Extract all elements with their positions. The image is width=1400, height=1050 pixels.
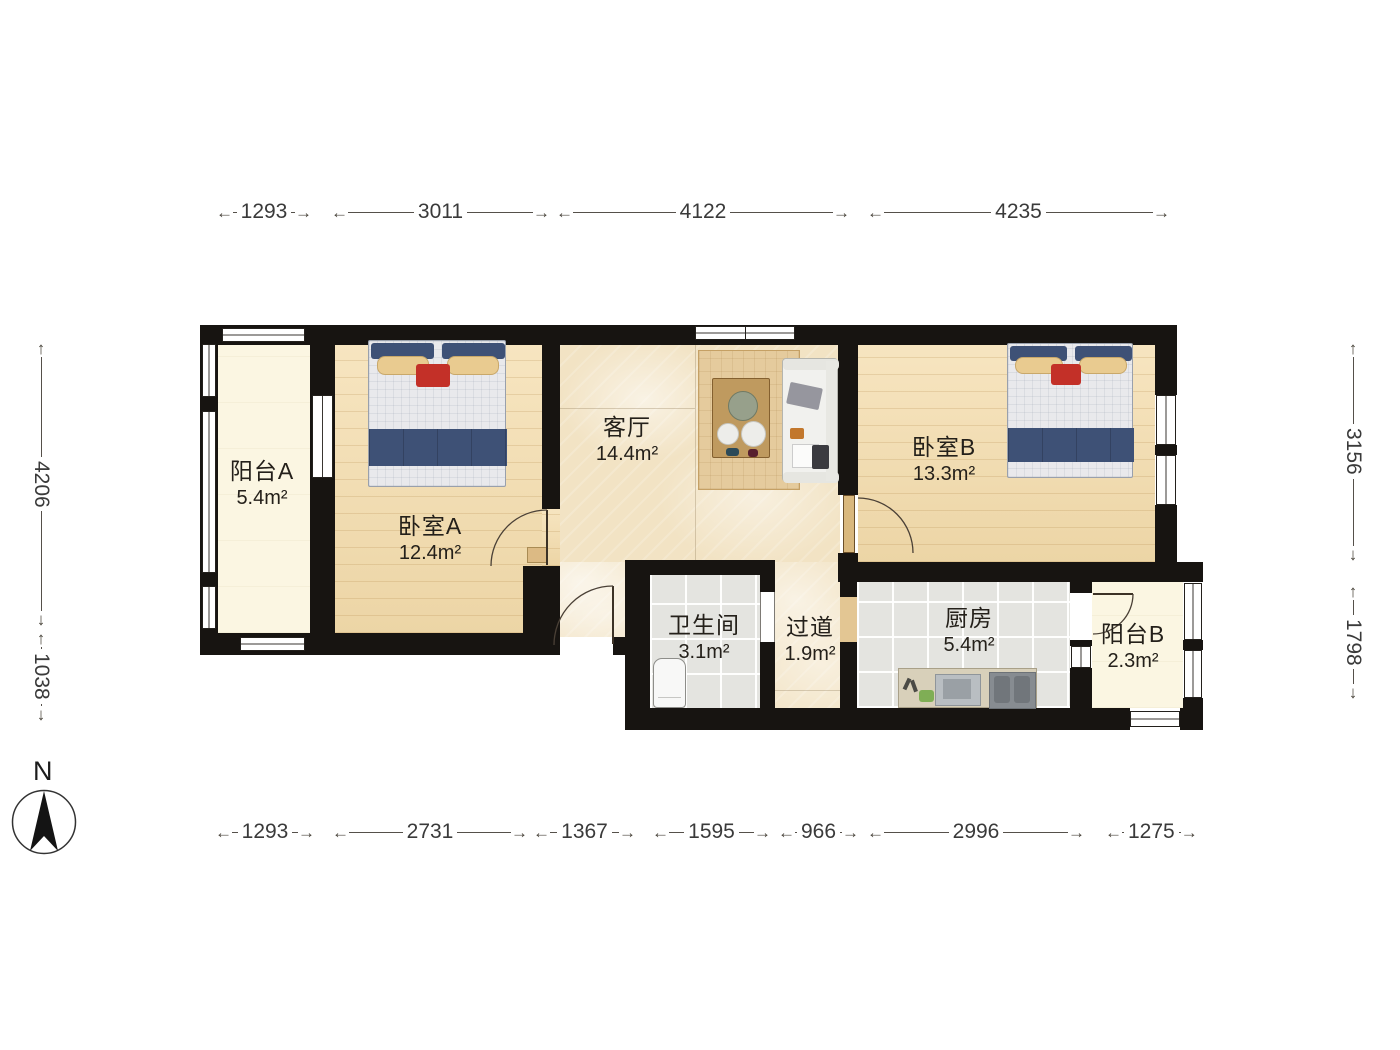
wall-segment [523, 637, 557, 655]
dim-line [573, 212, 676, 213]
wall-segment [625, 560, 775, 575]
arrow-right-icon: → [298, 824, 315, 841]
wall-segment [200, 325, 1177, 345]
window-icon [1156, 455, 1176, 505]
dimension-bottom-2: ← 1367 → [533, 819, 636, 845]
dimension-left-0: ↑ 4206 ↓ [28, 340, 54, 628]
dimension-right-0: ↑ 3156 ↓ [1340, 340, 1366, 563]
dimension-right-1: ↑ 1798 ↓ [1340, 583, 1366, 701]
sofa-pillow [786, 382, 823, 410]
wall-segment [1155, 325, 1177, 395]
room-label-balcony-a: 阳台A 5.4m² [192, 458, 332, 510]
bed-blanket [369, 429, 507, 466]
vegetables-icon [919, 690, 934, 702]
dim-value: 3011 [414, 200, 467, 224]
sofa-item [812, 445, 829, 469]
wall-segment [523, 566, 560, 636]
arrow-left-icon: ← [652, 824, 669, 841]
bed-pillow [447, 356, 499, 375]
dimension-bottom-4: ← 966 → [778, 819, 852, 845]
dimension-bottom-5: ← 2996 → [867, 819, 1085, 845]
arrow-left-icon: ← [1105, 824, 1122, 841]
dim-value: 1293 [238, 820, 293, 844]
dim-line [612, 832, 619, 833]
arrow-right-icon: → [1068, 824, 1085, 841]
window-mullion [745, 327, 746, 339]
wall-segment [838, 553, 858, 582]
window-icon [240, 637, 305, 651]
room-area: 1.9m² [740, 643, 880, 666]
arrow-right-icon: → [754, 824, 771, 841]
teapot-icon [726, 448, 739, 456]
plate-icon [741, 421, 766, 447]
room-area: 13.3m² [874, 463, 1014, 486]
room-label-bedroom-a: 卧室A 12.4m² [360, 513, 500, 565]
dim-value: 1798 [1341, 615, 1365, 670]
dimension-bottom-0: ← 1293 → [215, 819, 315, 845]
dim-line [41, 511, 42, 611]
room-name: 卧室B [874, 434, 1014, 460]
dim-line [41, 357, 42, 457]
water-heater [653, 658, 686, 708]
arrow-left-icon: ← [556, 204, 573, 221]
bed-red-cushion [1051, 364, 1081, 385]
dim-line [1003, 832, 1068, 833]
dimension-left-1: ↑ 1038 ↓ [28, 630, 54, 707]
dimension-top-0: ← 1293 → [216, 199, 312, 225]
dimension-bottom-3: ← 1595 → [652, 819, 771, 845]
tile-joint-line [775, 690, 840, 691]
dim-value: 3156 [1341, 424, 1365, 479]
compass-circle [13, 791, 76, 854]
wall-segment [1092, 708, 1130, 730]
dim-line [348, 212, 414, 213]
arrow-right-icon: → [833, 204, 850, 221]
arrow-up-icon: ↑ [37, 630, 46, 647]
dim-line [730, 212, 833, 213]
dim-line [884, 212, 991, 213]
sofa-cushion [790, 428, 804, 439]
sofa [782, 358, 838, 482]
room-name: 厨房 [899, 605, 1039, 631]
bed-blanket [1008, 428, 1134, 462]
arrow-down-icon: ↓ [37, 611, 46, 628]
room-name: 过道 [740, 614, 880, 640]
window-icon [222, 328, 305, 342]
tile-joint-line [560, 408, 695, 409]
bedside-stool [527, 547, 547, 563]
dim-value: 4206 [29, 457, 53, 512]
wall-segment [1183, 698, 1203, 730]
arrow-down-icon: ↓ [1349, 684, 1358, 701]
room-area: 2.3m² [1063, 650, 1203, 673]
dim-value: 1038 [29, 649, 53, 704]
dimension-top-1: ← 3011 → [331, 199, 550, 225]
utensil-icon [903, 678, 912, 691]
compass-needle [30, 791, 58, 851]
arrow-up-icon: ↑ [37, 340, 46, 357]
arrow-left-icon: ← [215, 824, 232, 841]
dimension-bottom-6: ← 1275 → [1105, 819, 1197, 845]
arrow-down-icon: ↓ [1349, 546, 1358, 563]
window-icon [1156, 395, 1176, 445]
dim-line [1353, 669, 1354, 684]
compass-icon [11, 789, 77, 855]
window-icon [1130, 711, 1180, 727]
floor-living-entry [560, 562, 625, 637]
dim-line [1046, 212, 1153, 213]
dim-value: 4235 [991, 200, 1046, 224]
room-name: 阳台B [1063, 621, 1203, 647]
wall-segment [1070, 668, 1092, 708]
room-area: 5.4m² [192, 487, 332, 510]
room-name: 客厅 [557, 414, 697, 440]
wall-segment [1155, 505, 1177, 562]
wall-segment [838, 325, 858, 495]
dim-value: 1293 [237, 200, 292, 224]
dimension-top-3: ← 4235 → [867, 199, 1170, 225]
water-heater-line [658, 697, 681, 698]
window-icon [202, 344, 216, 397]
utensil-icon [910, 680, 918, 693]
window-icon [202, 586, 216, 629]
dim-value: 1367 [557, 820, 612, 844]
dim-line [550, 832, 557, 833]
room-area: 14.4m² [557, 443, 697, 466]
arrow-down-icon: ↓ [37, 706, 46, 723]
dim-line [884, 832, 949, 833]
bed-a [368, 340, 506, 487]
room-area: 5.4m² [899, 634, 1039, 657]
plant-icon [728, 391, 758, 421]
dim-value: 2731 [403, 820, 458, 844]
dim-value: 1595 [684, 820, 739, 844]
sink-basin [994, 676, 1010, 703]
dimension-bottom-1: ← 2731 → [332, 819, 528, 845]
room-label-bedroom-b: 卧室B 13.3m² [874, 434, 1014, 486]
kitchen-counter [898, 668, 1037, 708]
arrow-right-icon: → [295, 204, 312, 221]
arrow-right-icon: → [511, 824, 528, 841]
floor-plan: 阳台A 5.4m² 卧室A 12.4m² 客厅 14.4m² 卧室B 13.3m… [0, 0, 1400, 1050]
bed-red-cushion [416, 364, 450, 387]
wall-segment [760, 560, 775, 592]
dim-value: 4122 [676, 200, 731, 224]
arrow-up-icon: ↑ [1349, 340, 1358, 357]
dim-line [1353, 600, 1354, 615]
wall-segment [1155, 445, 1177, 455]
dim-line [1353, 479, 1354, 546]
wall-segment [1070, 582, 1092, 593]
dimension-top-2: ← 4122 → [556, 199, 850, 225]
compass-north-label: N [33, 756, 53, 787]
dim-value: 966 [797, 820, 840, 844]
bed-b [1007, 343, 1133, 478]
room-name: 卧室A [360, 513, 500, 539]
wall-segment [625, 708, 857, 730]
arrow-right-icon: → [619, 824, 636, 841]
dim-line [1353, 357, 1354, 424]
coffee-table [712, 378, 770, 458]
arrow-left-icon: ← [216, 204, 233, 221]
bed-pillow [1079, 357, 1127, 374]
dim-line [457, 832, 511, 833]
wall-segment [857, 708, 1092, 730]
window-icon [695, 326, 795, 340]
room-label-living: 客厅 14.4m² [557, 414, 697, 466]
arrow-left-icon: ← [332, 824, 349, 841]
arrow-up-icon: ↑ [1349, 583, 1358, 600]
room-name: 阳台A [192, 458, 332, 484]
arrow-right-icon: → [842, 824, 859, 841]
arrow-right-icon: → [1181, 824, 1198, 841]
bedroom-b-door-leaf [843, 495, 855, 553]
stove-panel [943, 679, 971, 699]
arrow-left-icon: ← [778, 824, 795, 841]
arrow-left-icon: ← [867, 824, 884, 841]
room-label-hall: 过道 1.9m² [740, 614, 880, 666]
arrow-right-icon: → [1153, 204, 1170, 221]
dim-line [669, 832, 684, 833]
room-area: 12.4m² [360, 542, 500, 565]
dim-value: 1275 [1124, 820, 1179, 844]
dim-line [349, 832, 403, 833]
dim-line [739, 832, 754, 833]
sink-basin [1014, 676, 1030, 703]
dim-line [467, 212, 533, 213]
room-label-kitchen: 厨房 5.4m² [899, 605, 1039, 657]
dim-value: 2996 [949, 820, 1004, 844]
cup-icon [748, 449, 758, 457]
room-label-balcony-b: 阳台B 2.3m² [1063, 621, 1203, 673]
wall-segment [838, 562, 1203, 582]
arrow-right-icon: → [533, 204, 550, 221]
plate-icon [717, 423, 739, 445]
arrow-left-icon: ← [533, 824, 550, 841]
arrow-left-icon: ← [331, 204, 348, 221]
arrow-left-icon: ← [867, 204, 884, 221]
